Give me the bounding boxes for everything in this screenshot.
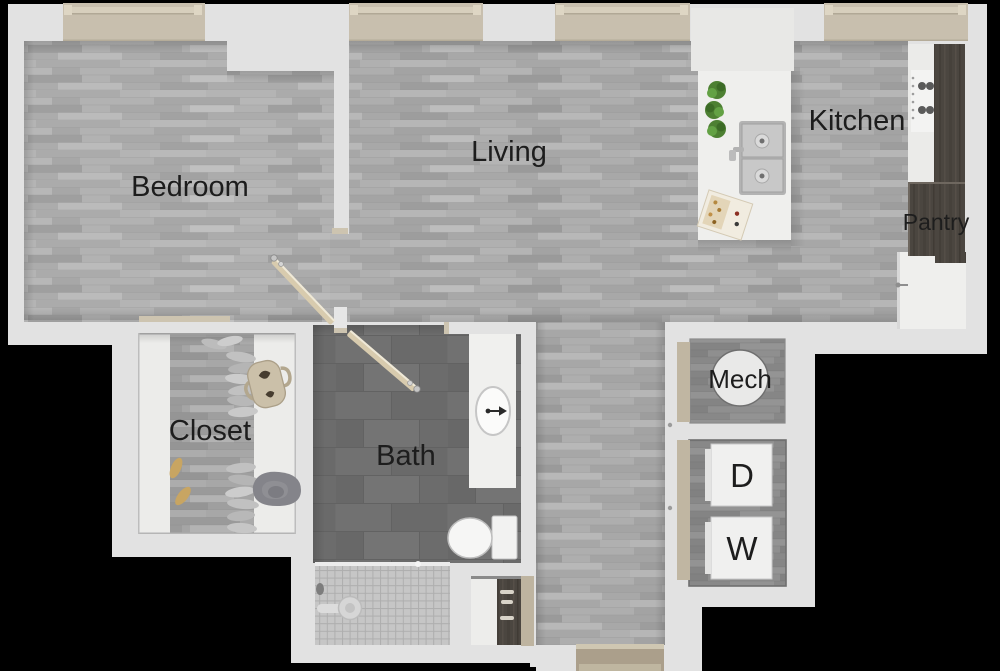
svg-text:Bedroom: Bedroom (131, 171, 249, 203)
svg-text:Pantry: Pantry (903, 209, 970, 235)
svg-text:Bath: Bath (376, 440, 436, 472)
svg-text:Living: Living (471, 136, 547, 168)
svg-text:Kitchen: Kitchen (809, 105, 906, 137)
svg-text:D: D (730, 457, 754, 494)
svg-text:Mech: Mech (708, 364, 772, 394)
svg-text:W: W (726, 530, 758, 567)
svg-text:Closet: Closet (169, 415, 251, 447)
